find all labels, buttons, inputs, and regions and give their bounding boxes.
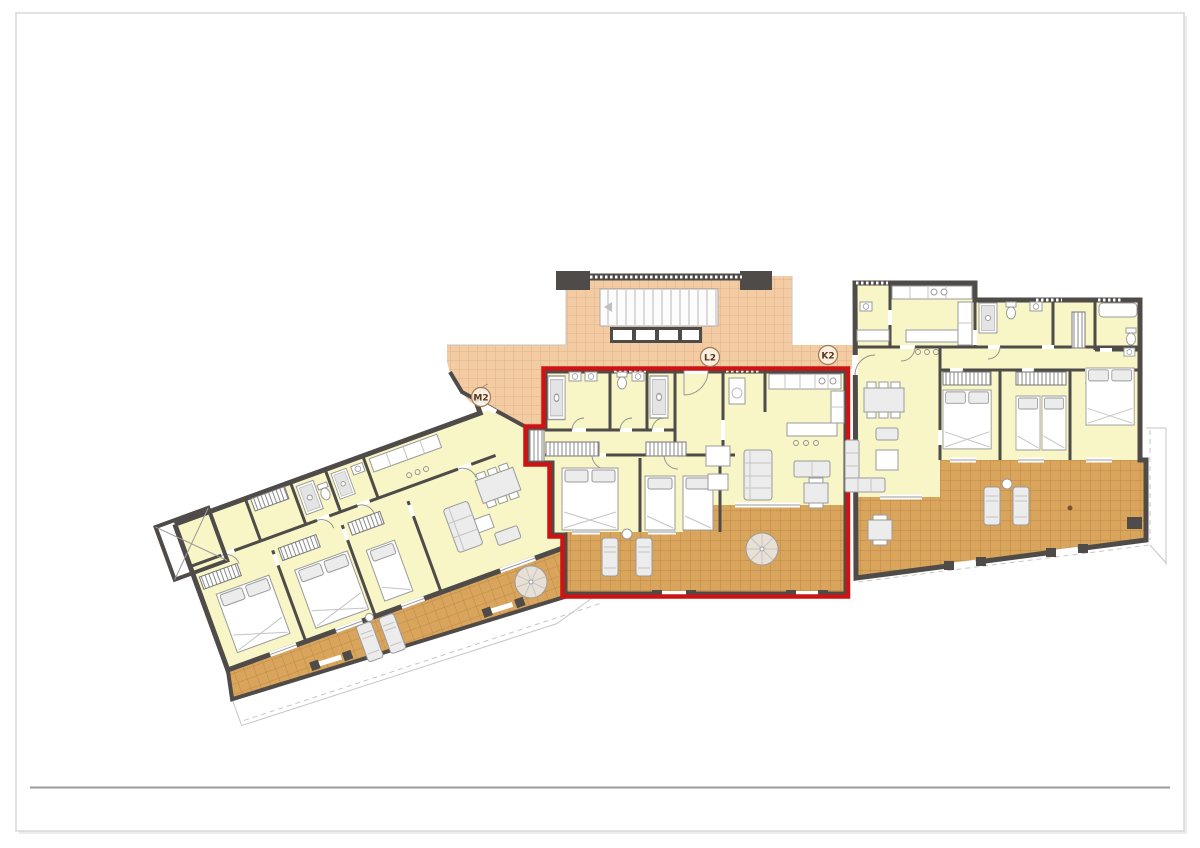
drain-dot [1068, 506, 1073, 511]
unit-label-k2: K2 [821, 352, 834, 362]
unit-label-m2: M2 [473, 394, 488, 404]
stair-wall-block [556, 271, 590, 290]
washbasin [1124, 348, 1135, 356]
terrace-planter [1127, 517, 1142, 529]
wardrobe-niche [529, 430, 544, 461]
terrace-table [868, 515, 892, 545]
sun-lounger [984, 487, 1000, 525]
double-bed [943, 390, 991, 449]
sun-lounger [602, 538, 618, 576]
washbasin [632, 372, 644, 381]
unit-label-l2: L2 [704, 354, 716, 364]
shower [650, 376, 668, 418]
washbasin [1030, 302, 1042, 311]
terrace-table-parasol [746, 533, 778, 565]
washbasin [860, 302, 872, 311]
stair-flight [600, 289, 718, 326]
washbasin [585, 372, 597, 381]
shower [979, 303, 997, 333]
single-bed [1016, 396, 1040, 450]
double-bed [562, 468, 618, 530]
toilet [1126, 328, 1136, 345]
double-bed [1086, 368, 1134, 425]
toilet [1006, 302, 1016, 319]
counter [857, 330, 889, 341]
single-bed [645, 476, 675, 530]
toilet [617, 372, 627, 389]
shower [548, 376, 565, 420]
wardrobe [546, 442, 599, 456]
floor-plan-canvas: M2 L2 K2 [0, 0, 1200, 848]
sun-lounger [636, 538, 652, 576]
wardrobe [1016, 372, 1066, 385]
washbasin [569, 372, 581, 381]
stair-wall-block [740, 271, 772, 290]
wardrobe [1072, 312, 1085, 348]
sun-lounger [1013, 487, 1029, 525]
wardrobe [646, 442, 686, 456]
wardrobe [943, 372, 991, 385]
center-apartment [526, 369, 849, 599]
side-table [1002, 479, 1012, 489]
washing-machine [729, 378, 745, 404]
side-table [622, 529, 632, 539]
single-bed [1042, 396, 1066, 450]
right-apartment [845, 283, 1166, 582]
bathtub [1099, 303, 1137, 317]
